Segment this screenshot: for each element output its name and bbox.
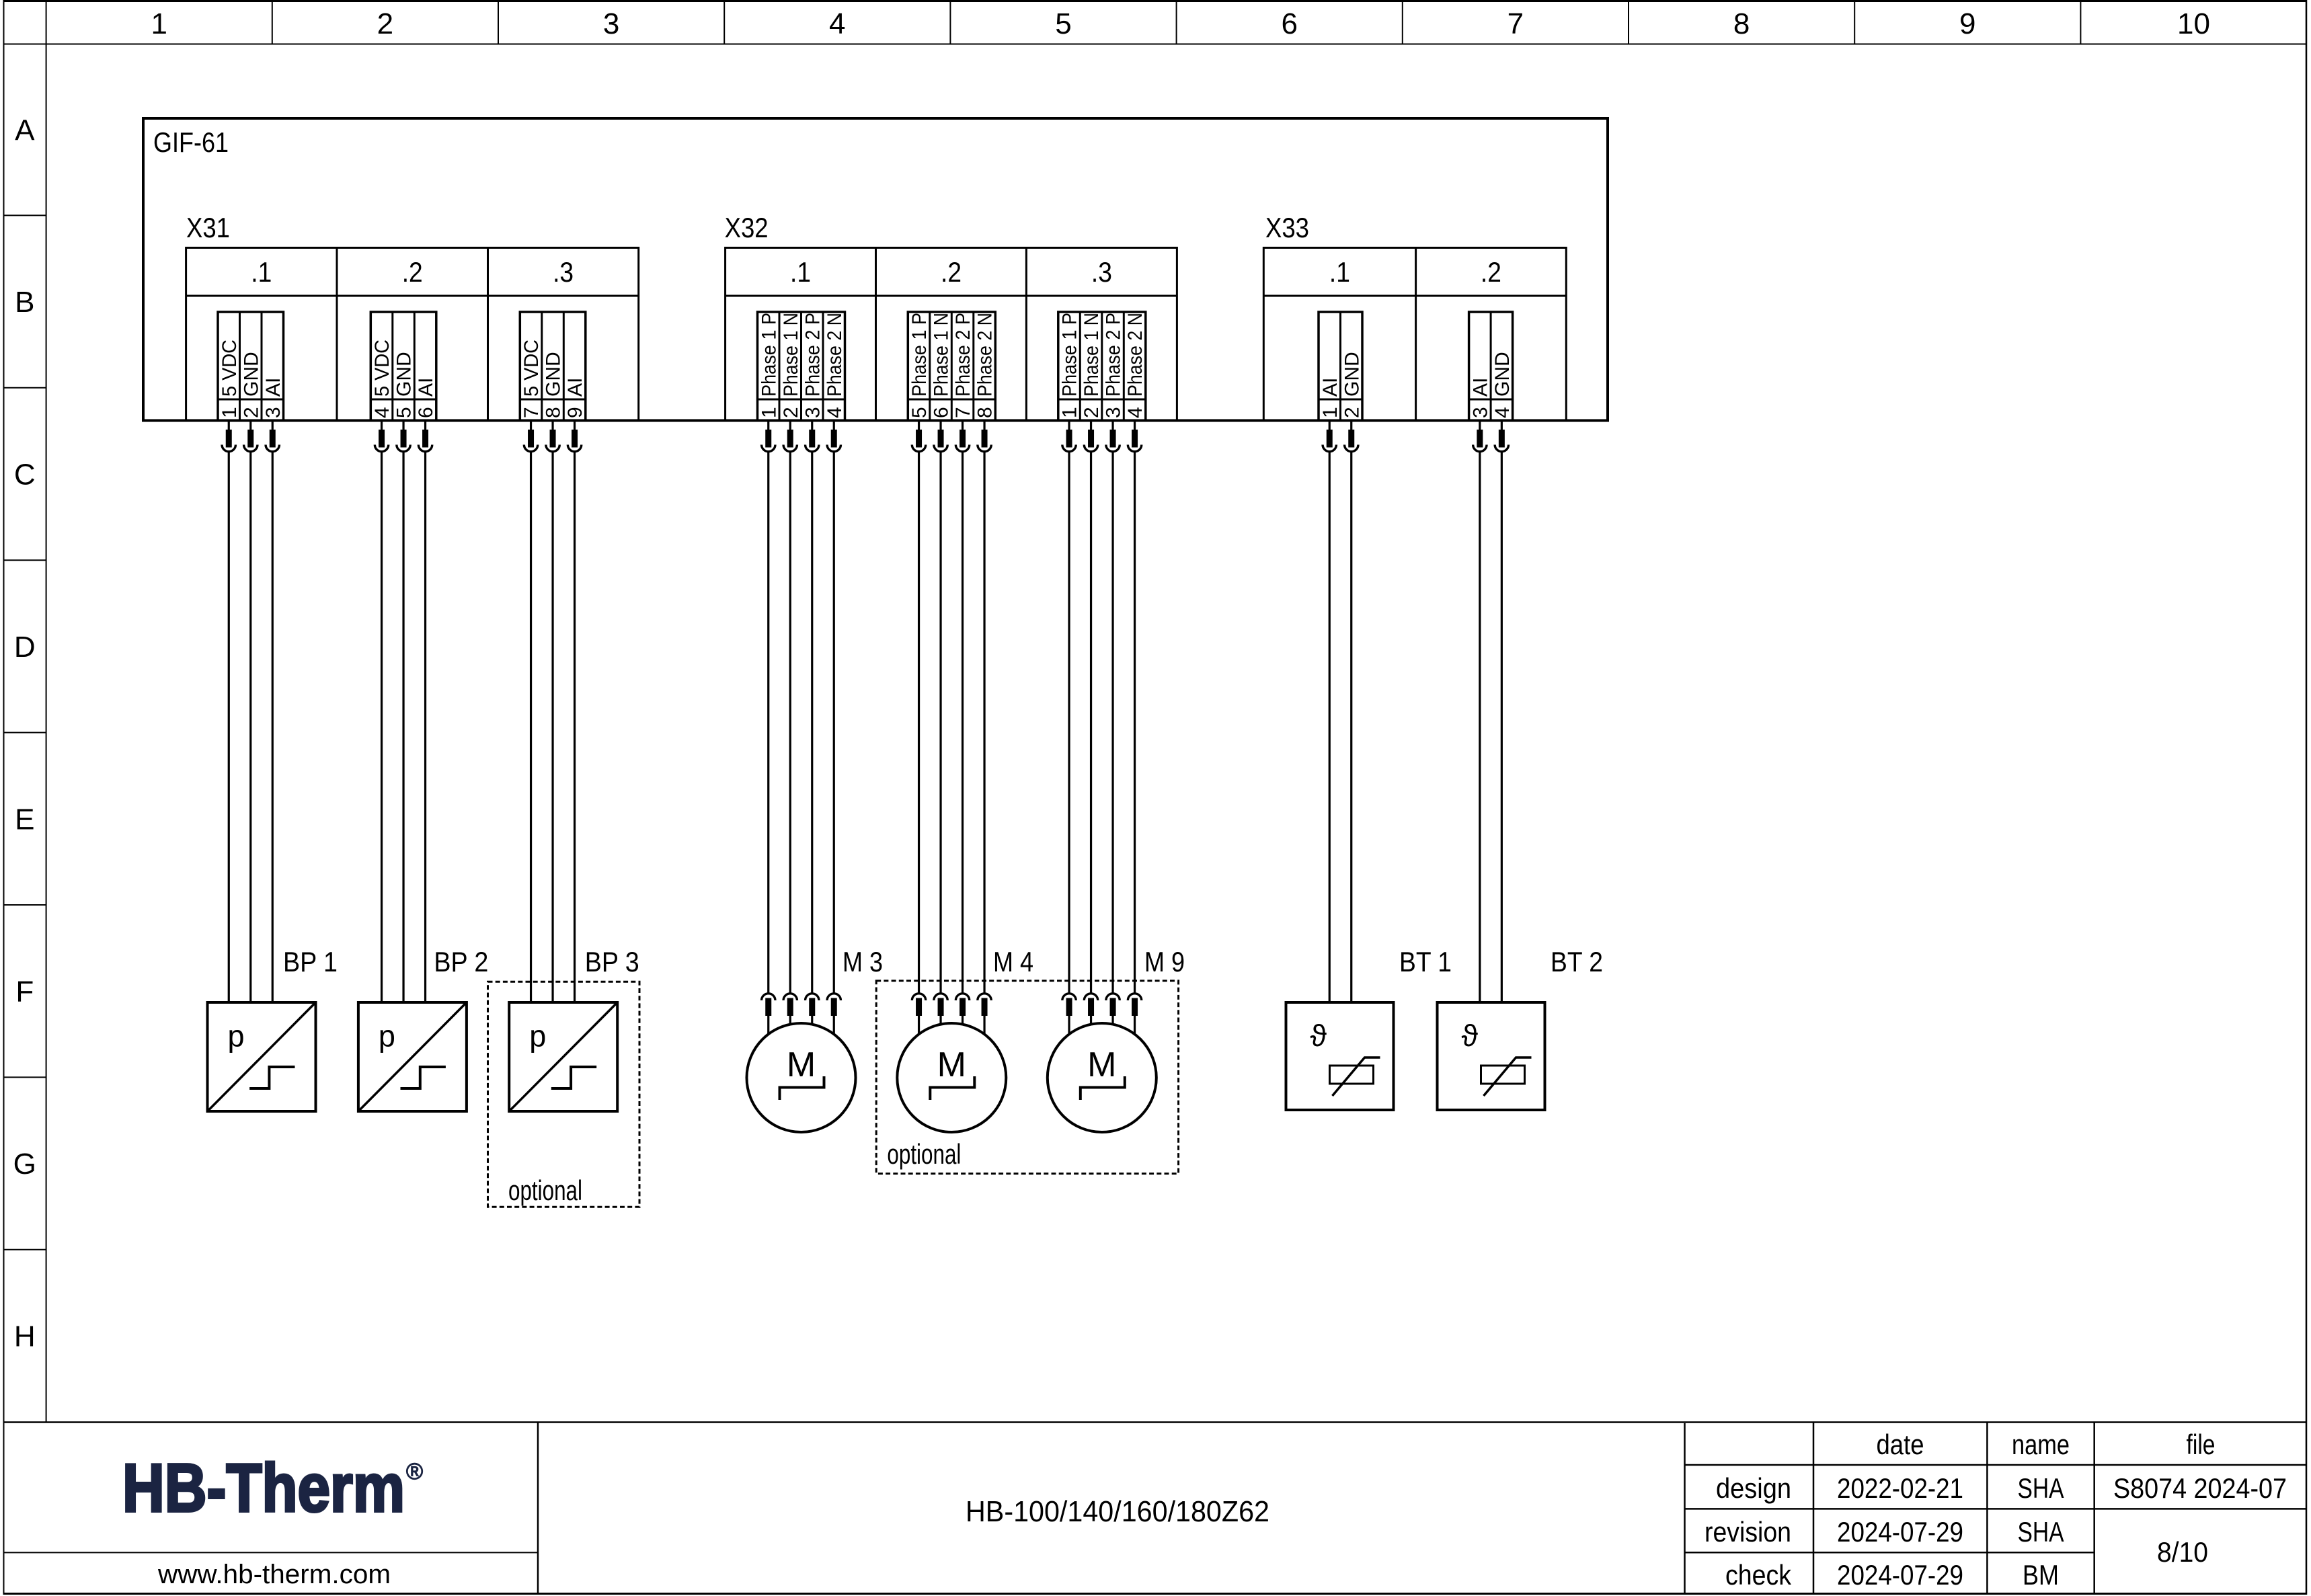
svg-text:5 VDC: 5 VDC <box>371 340 393 397</box>
svg-text:BP 1: BP 1 <box>283 946 338 977</box>
svg-text:HB-Therm: HB-Therm <box>122 1451 405 1526</box>
svg-text:2024-07-29: 2024-07-29 <box>1837 1559 1963 1591</box>
svg-text:GND: GND <box>1341 352 1363 397</box>
svg-text:Phase 2 N: Phase 2 N <box>1124 313 1146 397</box>
svg-text:name: name <box>2012 1429 2070 1460</box>
svg-text:2: 2 <box>1081 407 1103 418</box>
svg-text:9: 9 <box>1959 7 1975 40</box>
svg-text:BM: BM <box>2023 1559 2059 1591</box>
svg-text:X31: X31 <box>186 212 230 243</box>
svg-text:BP 3: BP 3 <box>585 946 639 977</box>
svg-text:Phase 2 P: Phase 2 P <box>801 313 824 397</box>
svg-text:BT 2: BT 2 <box>1551 946 1603 977</box>
svg-text:file: file <box>2187 1429 2216 1460</box>
svg-text:p: p <box>379 1019 395 1053</box>
svg-text:C: C <box>14 458 36 491</box>
svg-text:4: 4 <box>1124 407 1146 418</box>
svg-text:Phase 1 P: Phase 1 P <box>1059 313 1081 397</box>
svg-text:4: 4 <box>371 407 393 418</box>
svg-text:A: A <box>15 114 35 147</box>
svg-text:S8074 2024-07: S8074 2024-07 <box>2113 1472 2287 1504</box>
svg-text:1: 1 <box>1059 407 1081 418</box>
svg-text:2: 2 <box>377 7 393 40</box>
svg-text:AI: AI <box>415 378 437 397</box>
svg-text:BT 1: BT 1 <box>1399 946 1452 977</box>
svg-text:3: 3 <box>801 407 824 418</box>
svg-text:10: 10 <box>2177 7 2210 40</box>
svg-text:M: M <box>937 1045 966 1084</box>
svg-text:.3: .3 <box>553 256 574 288</box>
svg-text:optional: optional <box>887 1138 961 1170</box>
svg-text:p: p <box>529 1019 546 1053</box>
svg-text:www.hb-therm.com: www.hb-therm.com <box>157 1560 391 1589</box>
svg-text:F: F <box>15 975 34 1008</box>
svg-text:6: 6 <box>415 407 437 418</box>
svg-text:date: date <box>1877 1429 1924 1460</box>
svg-text:Phase 2 N: Phase 2 N <box>974 313 996 397</box>
svg-text:optional: optional <box>508 1174 582 1206</box>
svg-text:2022-02-21: 2022-02-21 <box>1837 1472 1963 1504</box>
svg-text:®: ® <box>406 1459 423 1484</box>
svg-text:SHA: SHA <box>2018 1472 2064 1504</box>
svg-text:Phase 2 P: Phase 2 P <box>1103 313 1125 397</box>
svg-text:B: B <box>15 286 34 319</box>
svg-text:HB-100/140/160/180Z62: HB-100/140/160/180Z62 <box>966 1495 1269 1528</box>
svg-text:design: design <box>1716 1472 1791 1504</box>
svg-text:Phase 1 P: Phase 1 P <box>758 313 780 397</box>
svg-text:Phase 2 P: Phase 2 P <box>952 313 974 397</box>
svg-text:AI: AI <box>1469 378 1491 397</box>
svg-text:3: 3 <box>262 407 284 418</box>
svg-text:4: 4 <box>824 407 846 418</box>
svg-text:.2: .2 <box>941 256 962 288</box>
svg-text:Phase 1 P: Phase 1 P <box>908 313 931 397</box>
svg-text:check: check <box>1725 1559 1792 1591</box>
svg-text:6: 6 <box>1281 7 1297 40</box>
svg-text:G: G <box>13 1148 36 1181</box>
svg-text:M 4: M 4 <box>993 946 1033 977</box>
svg-text:E: E <box>15 803 34 836</box>
svg-text:8: 8 <box>1733 7 1750 40</box>
svg-text:M: M <box>787 1045 816 1084</box>
svg-text:GND: GND <box>393 352 416 397</box>
svg-text:ϑ: ϑ <box>1310 1019 1327 1053</box>
svg-text:BP 2: BP 2 <box>434 946 488 977</box>
svg-text:SHA: SHA <box>2018 1516 2064 1548</box>
svg-text:7: 7 <box>520 407 543 418</box>
svg-text:Phase 1 N: Phase 1 N <box>780 313 802 397</box>
svg-text:9: 9 <box>564 407 586 418</box>
svg-text:2: 2 <box>240 407 262 418</box>
svg-text:4: 4 <box>829 7 845 40</box>
svg-text:5: 5 <box>1055 7 1071 40</box>
svg-text:.3: .3 <box>1091 256 1112 288</box>
svg-text:M 3: M 3 <box>843 946 883 977</box>
svg-text:GND: GND <box>543 352 565 397</box>
svg-text:8/10: 8/10 <box>2157 1536 2208 1568</box>
svg-text:X32: X32 <box>725 212 769 243</box>
svg-text:1: 1 <box>151 7 167 40</box>
svg-text:3: 3 <box>603 7 619 40</box>
svg-text:1: 1 <box>219 407 241 418</box>
svg-text:ϑ: ϑ <box>1462 1019 1479 1053</box>
svg-text:p: p <box>228 1019 245 1053</box>
svg-text:2: 2 <box>1341 407 1363 418</box>
svg-text:Phase 2 N: Phase 2 N <box>824 313 846 397</box>
svg-text:7: 7 <box>1507 7 1524 40</box>
svg-text:X33: X33 <box>1265 212 1309 243</box>
svg-text:GND: GND <box>1491 352 1514 397</box>
svg-text:8: 8 <box>543 407 565 418</box>
svg-text:3: 3 <box>1469 407 1491 418</box>
svg-text:GIF-61: GIF-61 <box>153 126 229 158</box>
svg-text:7: 7 <box>952 407 974 418</box>
svg-text:5: 5 <box>393 407 416 418</box>
svg-text:Phase 1 N: Phase 1 N <box>931 313 953 397</box>
svg-text:2024-07-29: 2024-07-29 <box>1837 1516 1963 1548</box>
svg-text:AI: AI <box>262 378 284 397</box>
svg-text:.2: .2 <box>1481 256 1501 288</box>
svg-text:2: 2 <box>780 407 802 418</box>
svg-text:.1: .1 <box>790 256 811 288</box>
svg-text:M 9: M 9 <box>1144 946 1185 977</box>
svg-text:H: H <box>14 1320 36 1353</box>
svg-text:revision: revision <box>1705 1516 1791 1548</box>
svg-text:8: 8 <box>974 407 996 418</box>
svg-text:.1: .1 <box>251 256 272 288</box>
svg-text:6: 6 <box>931 407 953 418</box>
svg-text:.1: .1 <box>1329 256 1350 288</box>
svg-text:AI: AI <box>564 378 586 397</box>
svg-text:1: 1 <box>758 407 780 418</box>
svg-text:D: D <box>14 631 36 664</box>
svg-text:5: 5 <box>908 407 931 418</box>
svg-text:1: 1 <box>1319 407 1341 418</box>
svg-text:M: M <box>1087 1045 1116 1084</box>
svg-text:5 VDC: 5 VDC <box>520 340 543 397</box>
svg-text:GND: GND <box>240 352 262 397</box>
svg-text:Phase 1 N: Phase 1 N <box>1081 313 1103 397</box>
svg-text:5 VDC: 5 VDC <box>219 340 241 397</box>
svg-text:.2: .2 <box>402 256 423 288</box>
svg-text:4: 4 <box>1491 407 1514 418</box>
svg-text:AI: AI <box>1319 378 1341 397</box>
svg-text:3: 3 <box>1103 407 1125 418</box>
